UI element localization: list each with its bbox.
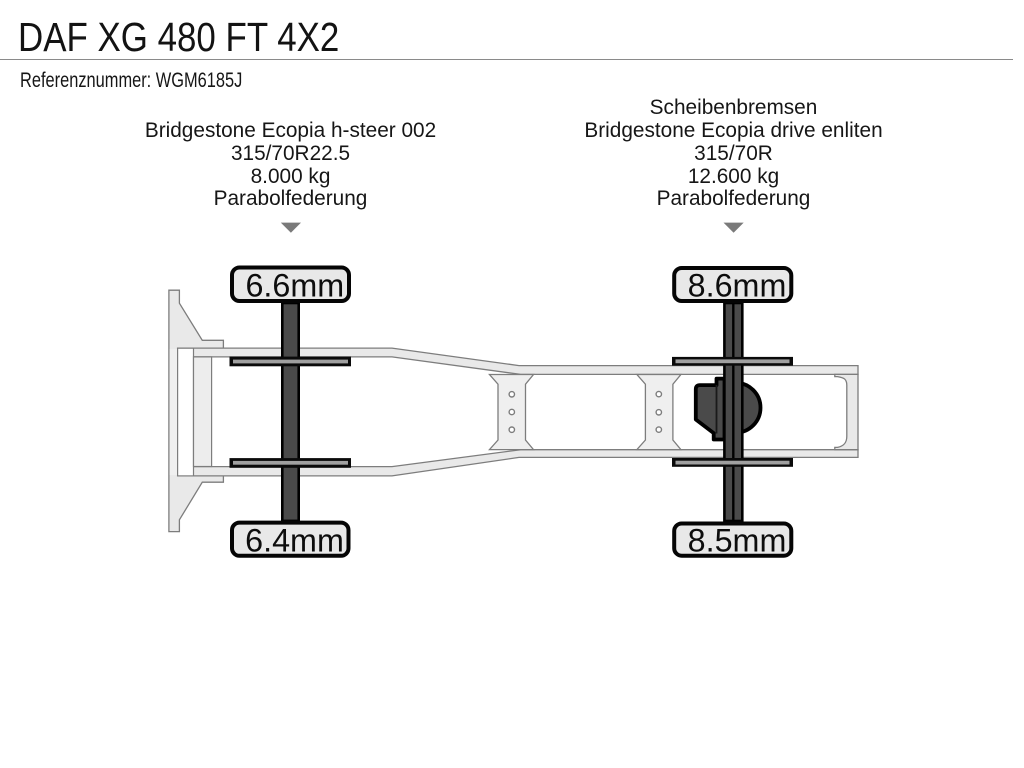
svg-text:6.6mm: 6.6mm	[245, 267, 344, 303]
svg-text:8.5mm: 8.5mm	[688, 522, 787, 558]
svg-text:8.6mm: 8.6mm	[688, 267, 787, 303]
svg-text:6.4mm: 6.4mm	[245, 522, 344, 558]
